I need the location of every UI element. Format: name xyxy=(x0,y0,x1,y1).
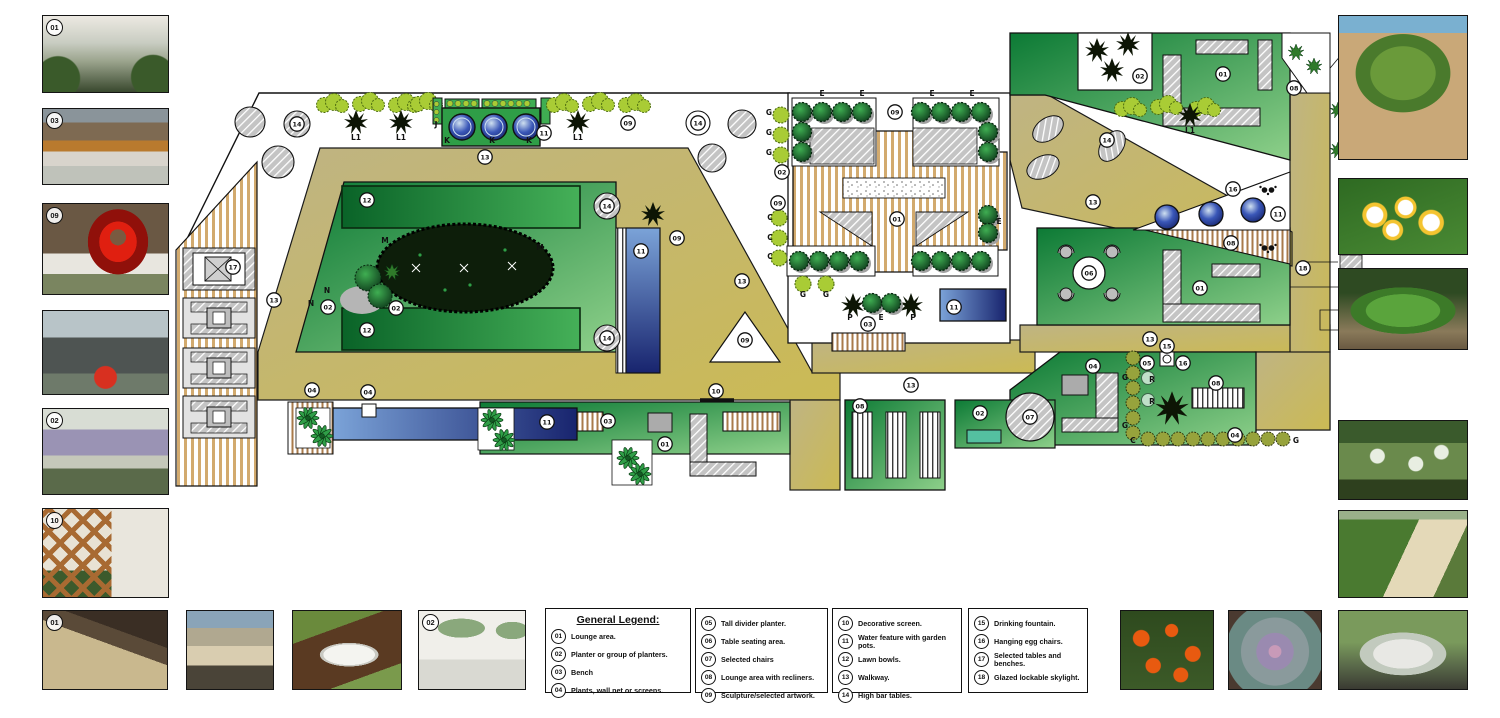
photo-badge: 01 xyxy=(46,614,63,631)
main-lawn-room xyxy=(296,182,616,352)
plan-marker-09: 09 xyxy=(888,105,902,119)
plan-marker-02: 02 xyxy=(1133,69,1147,83)
lawn-bowls-strip xyxy=(342,308,580,350)
svg-text:13: 13 xyxy=(738,277,747,285)
svg-text:13: 13 xyxy=(1146,335,1155,343)
plan-marker-02: 02 xyxy=(775,165,789,179)
photo-shrub-mound xyxy=(1338,268,1468,350)
drinking-fountain xyxy=(1160,352,1174,366)
legend-item-label: Plants, wall net or screens. xyxy=(571,687,663,695)
legend-item-label: High bar tables. xyxy=(858,692,912,700)
legend-item-number: 10 xyxy=(838,616,853,631)
plan-label-L1: L1 xyxy=(396,133,406,142)
plan-marker-16: 16 xyxy=(1176,356,1190,370)
plan-label-G: G xyxy=(766,128,772,137)
svg-text:03: 03 xyxy=(604,417,613,425)
legend-item-number: 07 xyxy=(701,652,716,667)
lawn-bowls-strip xyxy=(342,186,580,228)
svg-text:01: 01 xyxy=(893,215,902,223)
photo-badge: 02 xyxy=(422,614,439,631)
plan-marker-09: 09 xyxy=(738,333,752,347)
deck-strip xyxy=(616,228,626,373)
plan-label-N: N xyxy=(308,299,314,308)
legend-item-16: 16Hanging egg chairs. xyxy=(974,634,1082,649)
plan-marker-05: 05 xyxy=(1140,356,1154,370)
recliner-lounge xyxy=(1192,388,1244,408)
plan-label-G: G xyxy=(1122,373,1128,382)
svg-text:04: 04 xyxy=(364,388,373,396)
svg-text:16: 16 xyxy=(1229,185,1238,193)
legend-item-number: 04 xyxy=(551,683,566,698)
svg-text:10: 10 xyxy=(712,387,721,395)
plan-marker-11: 11 xyxy=(1271,207,1285,221)
legend-title: General Legend: xyxy=(551,614,685,626)
svg-text:11: 11 xyxy=(637,247,646,255)
svg-text:11: 11 xyxy=(1274,210,1283,218)
photo-groundcover xyxy=(1338,420,1468,500)
svg-text:02: 02 xyxy=(1136,72,1145,80)
plan-marker-08: 08 xyxy=(1224,236,1238,250)
photo-badge: 02 xyxy=(46,412,63,429)
plan-label-E: E xyxy=(969,89,974,98)
svg-text:09: 09 xyxy=(774,199,783,207)
svg-text:18: 18 xyxy=(1299,264,1308,272)
pergola-deck xyxy=(176,162,257,486)
svg-text:09: 09 xyxy=(891,108,900,116)
photo-frangipani xyxy=(1338,178,1468,255)
plan-marker-14: 14 xyxy=(600,331,614,345)
svg-text:08: 08 xyxy=(1212,379,1221,387)
plan-marker-12: 12 xyxy=(360,323,374,337)
photo-hedge-path xyxy=(1338,510,1468,598)
photo-badge: 03 xyxy=(46,112,63,129)
legend-box-4: 15Drinking fountain.16Hanging egg chairs… xyxy=(968,608,1088,693)
plan-marker-13: 13 xyxy=(478,150,492,164)
plan-label-L1: L1 xyxy=(573,133,583,142)
plan-marker-02: 02 xyxy=(973,406,987,420)
plan-label-C: C xyxy=(767,252,773,261)
photo-succulent xyxy=(1228,610,1322,690)
plan-label-L1: L1 xyxy=(1185,126,1195,135)
svg-text:01: 01 xyxy=(661,440,670,448)
plan-marker-14: 14 xyxy=(1100,133,1114,147)
svg-text:04: 04 xyxy=(1231,431,1240,439)
svg-text:02: 02 xyxy=(392,304,401,312)
plan-marker-11: 11 xyxy=(947,300,961,314)
plan-marker-13: 13 xyxy=(267,293,281,307)
plan-marker-12: 12 xyxy=(360,193,374,207)
legend-item-label: Lounge area with recliners. xyxy=(721,674,814,682)
svg-text:11: 11 xyxy=(950,303,959,311)
south-central-features xyxy=(845,393,1055,490)
legend-item-label: Sculpture/selected artwork. xyxy=(721,692,815,700)
plan-label-C: C xyxy=(767,233,773,242)
legend-box-1: General Legend: 01Lounge area.02Planter … xyxy=(545,608,691,693)
legend-item-number: 12 xyxy=(838,652,853,667)
legend-item-03: 03Bench xyxy=(551,665,685,680)
legend-item-number: 02 xyxy=(551,647,566,662)
plan-marker-04: 04 xyxy=(361,385,375,399)
svg-text:11: 11 xyxy=(543,418,552,426)
plan-label-G: G xyxy=(1293,436,1299,445)
legend-item-label: Selected chairs xyxy=(721,656,774,664)
svg-text:02: 02 xyxy=(324,303,333,311)
svg-text:03: 03 xyxy=(864,320,873,328)
svg-text:04: 04 xyxy=(1089,362,1098,370)
plan-label-E: E xyxy=(929,89,934,98)
svg-text:07: 07 xyxy=(1026,413,1035,421)
plan-label-G: G xyxy=(766,108,772,117)
plan-label-E: E xyxy=(819,89,824,98)
legend-item-label: Glazed lockable skylight. xyxy=(994,674,1079,682)
legend-item-15: 15Drinking fountain. xyxy=(974,616,1082,631)
legend-box-2: 05Tall divider planter.06Table seating a… xyxy=(695,608,828,693)
plan-marker-18: 18 xyxy=(1296,261,1310,275)
plan-label-L1: L1 xyxy=(351,133,361,142)
legend-item-number: 17 xyxy=(974,652,989,667)
svg-text:08: 08 xyxy=(856,402,865,410)
legend-item-07: 07Selected chairs xyxy=(701,652,822,667)
plan-marker-16: 16 xyxy=(1226,182,1240,196)
legend-item-18: 18Glazed lockable skylight. xyxy=(974,670,1082,685)
legend-item-label: Bench xyxy=(571,669,593,677)
legend-item-02: 02Planter or group of planters. xyxy=(551,647,685,662)
svg-text:01: 01 xyxy=(1196,284,1205,292)
legend-item-13: 13Walkway. xyxy=(838,670,956,685)
legend-item-04: 04Plants, wall net or screens. xyxy=(551,683,685,698)
legend-item-number: 09 xyxy=(701,688,716,703)
plan-marker-14: 14 xyxy=(691,116,705,130)
palm-canopy-mass xyxy=(377,224,553,312)
svg-text:12: 12 xyxy=(363,326,372,334)
legend-item-12: 12Lawn bowls. xyxy=(838,652,956,667)
svg-text:13: 13 xyxy=(270,296,279,304)
plan-label-R: R xyxy=(1149,375,1155,384)
plan-marker-17: 17 xyxy=(226,260,240,274)
legend-item-label: Water feature with garden pots. xyxy=(858,634,956,649)
plan-marker-11: 11 xyxy=(540,415,554,429)
svg-text:14: 14 xyxy=(293,120,302,128)
plan-label-C: C xyxy=(767,213,773,222)
plan-marker-11: 11 xyxy=(634,244,648,258)
legend-item-09: 09Sculpture/selected artwork. xyxy=(701,688,822,703)
legend-item-number: 18 xyxy=(974,670,989,685)
legend-item-label: Lounge area. xyxy=(571,633,616,641)
plan-label-G: G xyxy=(800,290,806,299)
legend-item-number: 05 xyxy=(701,616,716,631)
plan-label-R: R xyxy=(1149,397,1155,406)
plan-marker-15: 15 xyxy=(1160,339,1174,353)
plan-marker-04: 04 xyxy=(1228,428,1242,442)
legend-item-label: Tall divider planter. xyxy=(721,620,786,628)
photo-lavender-planters: 02 xyxy=(42,408,169,495)
svg-text:15: 15 xyxy=(1163,342,1172,350)
photo-decorative-screen: 10 xyxy=(42,508,169,598)
plan-label-P: P xyxy=(910,313,916,322)
svg-text:13: 13 xyxy=(481,153,490,161)
legend-item-01: 01Lounge area. xyxy=(551,629,685,644)
svg-text:01: 01 xyxy=(1219,70,1228,78)
legend-item-05: 05Tall divider planter. xyxy=(701,616,822,631)
svg-text:11: 11 xyxy=(540,129,549,137)
photo-lounge-area: 01 xyxy=(42,15,169,93)
plan-marker-02: 02 xyxy=(321,300,335,314)
svg-text:04: 04 xyxy=(308,386,317,394)
plan-marker-11: 11 xyxy=(537,126,551,140)
plan-label-E: E xyxy=(878,313,883,322)
plan-marker-03: 03 xyxy=(601,414,615,428)
plan-marker-08: 08 xyxy=(1209,376,1223,390)
svg-text:13: 13 xyxy=(907,381,916,389)
plan-marker-09: 09 xyxy=(621,116,635,130)
legend-item-number: 14 xyxy=(838,688,853,703)
legend-item-number: 13 xyxy=(838,670,853,685)
svg-text:09: 09 xyxy=(624,119,633,127)
legend-item-label: Planter or group of planters. xyxy=(571,651,668,659)
svg-text:12: 12 xyxy=(363,196,372,204)
legend-item-label: Decorative screen. xyxy=(858,620,922,628)
plan-marker-09: 09 xyxy=(771,196,785,210)
legend-item-14: 14High bar tables. xyxy=(838,688,956,703)
plan-label-G: G xyxy=(766,148,772,157)
svg-text:09: 09 xyxy=(673,234,682,242)
photo-orange-flowers xyxy=(1120,610,1214,690)
svg-text:14: 14 xyxy=(603,202,612,210)
plan-marker-10: 10 xyxy=(709,384,723,398)
landscape-plan-sheet: L1L1L1L1MMNNEEEEEPEPCCCGGGGGJKKKRRGGCG 1… xyxy=(0,0,1500,718)
legend-item-number: 06 xyxy=(701,634,716,649)
legend-item-number: 08 xyxy=(701,670,716,685)
svg-text:09: 09 xyxy=(741,336,750,344)
legend-item-label: Hanging egg chairs. xyxy=(994,638,1063,646)
plan-label-G: G xyxy=(823,290,829,299)
photo-badge: 10 xyxy=(46,512,63,529)
svg-text:14: 14 xyxy=(603,334,612,342)
plan-marker-14: 14 xyxy=(290,117,304,131)
photo-planter-group xyxy=(42,310,169,395)
plan-marker-04: 04 xyxy=(1086,359,1100,373)
svg-text:08: 08 xyxy=(1227,239,1236,247)
legend-item-06: 06Table seating area. xyxy=(701,634,822,649)
svg-text:16: 16 xyxy=(1179,359,1188,367)
plan-label-M: M xyxy=(536,243,543,252)
svg-text:14: 14 xyxy=(694,119,703,127)
legend-item-label: Table seating area. xyxy=(721,638,785,646)
plan-label-E: E xyxy=(859,89,864,98)
stone-band xyxy=(843,178,945,198)
svg-text:05: 05 xyxy=(1143,359,1152,367)
svg-text:13: 13 xyxy=(1089,198,1098,206)
plan-marker-14: 14 xyxy=(600,199,614,213)
legend-item-number: 01 xyxy=(551,629,566,644)
photo-water-bowl xyxy=(292,610,402,690)
plan-marker-13: 13 xyxy=(904,378,918,392)
plan-marker-01: 01 xyxy=(890,212,904,226)
legend-item-10: 10Decorative screen. xyxy=(838,616,956,631)
plan-label-G: G xyxy=(1122,421,1128,430)
top-planting-strip xyxy=(317,93,651,147)
legend-box-3: 10Decorative screen.11Water feature with… xyxy=(832,608,962,693)
plan-marker-09: 09 xyxy=(670,231,684,245)
legend-item-17: 17Selected tables and benches. xyxy=(974,652,1082,667)
plan-marker-06: 06 xyxy=(1082,266,1096,280)
legend-item-number: 11 xyxy=(838,634,853,649)
legend-item-number: 15 xyxy=(974,616,989,631)
svg-text:08: 08 xyxy=(1290,84,1299,92)
plan-label-M: M xyxy=(381,236,388,245)
photo-deck-water-feature: 01 xyxy=(42,610,168,690)
svg-text:02: 02 xyxy=(778,168,787,176)
legend-item-label: Drinking fountain. xyxy=(994,620,1056,628)
plan-marker-08: 08 xyxy=(1287,81,1301,95)
plan-label-E: E xyxy=(996,217,1001,226)
photo-badge: 09 xyxy=(46,207,63,224)
bench xyxy=(832,333,905,351)
plan-label-C: C xyxy=(1130,436,1136,445)
legend-item-08: 08Lounge area with recliners. xyxy=(701,670,822,685)
plan-label-N: N xyxy=(324,286,330,295)
south-west-strip xyxy=(288,402,790,485)
svg-text:14: 14 xyxy=(1103,136,1112,144)
photo-sun-loungers xyxy=(186,610,274,690)
plan-marker-04: 04 xyxy=(305,383,319,397)
plan-marker-01: 01 xyxy=(658,437,672,451)
plan-marker-01: 01 xyxy=(1216,67,1230,81)
photo-timber-bench: 03 xyxy=(42,108,169,185)
plan-marker-07: 07 xyxy=(1023,410,1037,424)
photo-badge: 01 xyxy=(46,19,63,36)
legend-item-label: Walkway. xyxy=(858,674,890,682)
plan-label-J: J xyxy=(434,120,438,129)
plan-label-P: P xyxy=(847,313,853,322)
legend-item-number: 16 xyxy=(974,634,989,649)
plan-marker-08: 08 xyxy=(853,399,867,413)
plan-marker-01: 01 xyxy=(1193,281,1207,295)
photo-red-sculpture: 09 xyxy=(42,203,169,295)
plan-marker-13: 13 xyxy=(735,274,749,288)
photo-palm-tree xyxy=(1338,15,1468,160)
legend-item-label: Lawn bowls. xyxy=(858,656,901,664)
svg-text:02: 02 xyxy=(976,409,985,417)
svg-text:17: 17 xyxy=(229,263,238,271)
plan-marker-02: 02 xyxy=(389,301,403,315)
bench xyxy=(723,412,780,431)
legend-item-label: Selected tables and benches. xyxy=(994,652,1082,667)
photo-white-planters: 02 xyxy=(418,610,526,690)
plan-marker-13: 13 xyxy=(1143,332,1157,346)
legend-item-11: 11Water feature with garden pots. xyxy=(838,634,956,649)
photo-silver-mound xyxy=(1338,610,1468,690)
plan-marker-03: 03 xyxy=(861,317,875,331)
svg-text:06: 06 xyxy=(1085,269,1094,277)
plan-marker-13: 13 xyxy=(1086,195,1100,209)
legend-item-number: 03 xyxy=(551,665,566,680)
